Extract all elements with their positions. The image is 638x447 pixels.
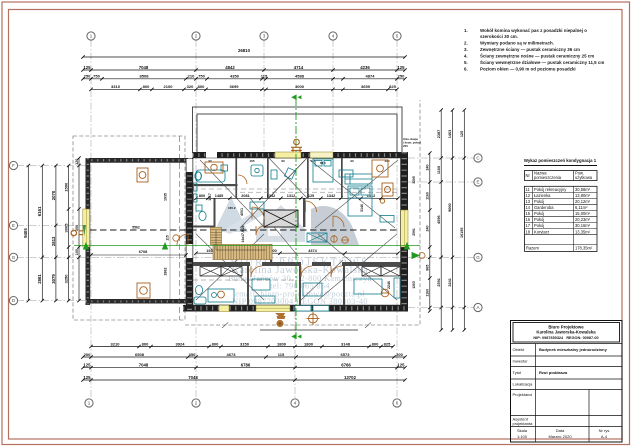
svg-text:100: 100 bbox=[75, 249, 79, 255]
svg-text:3659: 3659 bbox=[361, 84, 371, 89]
svg-text:115: 115 bbox=[278, 352, 285, 357]
svg-text:1342: 1342 bbox=[327, 194, 335, 198]
svg-text:18: 18 bbox=[526, 229, 531, 234]
svg-text:30,58m²: 30,58m² bbox=[575, 187, 591, 192]
svg-text:800: 800 bbox=[212, 341, 219, 346]
svg-text:17: 17 bbox=[526, 223, 531, 228]
svg-text:F: F bbox=[12, 163, 15, 168]
svg-text:Łazienka: Łazienka bbox=[534, 193, 551, 198]
svg-text:800: 800 bbox=[199, 194, 205, 198]
svg-text:165.2: 165.2 bbox=[228, 206, 236, 210]
svg-text:Pokój: Pokój bbox=[534, 223, 544, 228]
svg-text:1342: 1342 bbox=[267, 194, 275, 198]
svg-text:125: 125 bbox=[83, 375, 91, 380]
svg-text:4374: 4374 bbox=[308, 249, 317, 253]
svg-text:6786: 6786 bbox=[241, 362, 251, 367]
svg-text:1203: 1203 bbox=[412, 281, 416, 289]
svg-text:5.: 5. bbox=[464, 60, 468, 65]
svg-text:125: 125 bbox=[397, 65, 405, 70]
svg-text:Zewnętrzne ściany — pustak cer: Zewnętrzne ściany — pustak ceramiczny 36… bbox=[480, 47, 580, 52]
svg-text:90: 90 bbox=[350, 159, 354, 163]
svg-text:16: 16 bbox=[526, 217, 531, 222]
svg-text:4714: 4714 bbox=[294, 65, 304, 70]
svg-text:Poziom okien — 0,90 m od pozio: Poziom okien — 0,90 m od poziomu posadzk… bbox=[480, 67, 576, 72]
svg-text:14: 14 bbox=[526, 205, 531, 210]
svg-text:13,35m²: 13,35m² bbox=[575, 229, 591, 234]
svg-text:750: 750 bbox=[198, 74, 205, 79]
svg-text:125: 125 bbox=[397, 362, 405, 367]
svg-text:4673: 4673 bbox=[227, 352, 237, 357]
svg-text:Lokalizacja: Lokalizacja bbox=[513, 382, 534, 387]
svg-text:800: 800 bbox=[198, 84, 205, 89]
svg-text:1485: 1485 bbox=[215, 194, 223, 198]
svg-text:3699: 3699 bbox=[230, 84, 240, 89]
svg-text:szerokości 30 cm.: szerokości 30 cm. bbox=[480, 34, 518, 39]
svg-text:2100: 2100 bbox=[164, 84, 174, 89]
svg-text:Ściany zewnętrzne nośne — pust: Ściany zewnętrzne nośne — pustak ceramic… bbox=[480, 53, 594, 59]
svg-text:800: 800 bbox=[372, 341, 379, 346]
svg-text:Rzut poddasza: Rzut poddasza bbox=[539, 370, 568, 375]
svg-text:6161: 6161 bbox=[37, 206, 42, 216]
svg-text:7048: 7048 bbox=[139, 65, 149, 70]
svg-text:Marzec 2020: Marzec 2020 bbox=[548, 434, 572, 439]
svg-text:1312: 1312 bbox=[287, 194, 295, 198]
svg-text:Tytuł: Tytuł bbox=[513, 370, 522, 375]
svg-text:4588: 4588 bbox=[295, 74, 305, 79]
svg-text:Obiekt: Obiekt bbox=[513, 347, 525, 352]
svg-text:4001: 4001 bbox=[240, 208, 244, 216]
svg-text:2246: 2246 bbox=[387, 281, 391, 289]
svg-text:projektanta: projektanta bbox=[513, 421, 534, 426]
svg-text:13: 13 bbox=[526, 199, 531, 204]
svg-text:1117: 1117 bbox=[208, 193, 212, 201]
svg-text:4350: 4350 bbox=[230, 74, 240, 79]
svg-text:Razem: Razem bbox=[526, 245, 540, 250]
svg-text:1590: 1590 bbox=[64, 182, 69, 192]
svg-text:Wykaz pomieszczeń kondygnacja: Wykaz pomieszczeń kondygnacja 1 bbox=[524, 158, 597, 163]
svg-text:15: 15 bbox=[526, 211, 531, 216]
svg-text:3005: 3005 bbox=[64, 223, 69, 233]
svg-text:2861: 2861 bbox=[37, 274, 42, 284]
svg-text:pomieszczenia: pomieszczenia bbox=[534, 175, 562, 180]
svg-text:7048: 7048 bbox=[139, 362, 149, 367]
svg-text:Ściany wewnętrzne działowe — p: Ściany wewnętrzne działowe — pustak cera… bbox=[480, 59, 604, 65]
svg-text:Garderoba: Garderoba bbox=[534, 205, 554, 210]
svg-text:115: 115 bbox=[166, 235, 170, 241]
svg-text:20,12m²: 20,12m² bbox=[575, 199, 591, 204]
svg-text:13,80m²: 13,80m² bbox=[575, 193, 591, 198]
svg-text:6573: 6573 bbox=[341, 352, 351, 357]
svg-text:4596: 4596 bbox=[437, 215, 441, 223]
svg-text:1935: 1935 bbox=[164, 193, 168, 201]
svg-text:Wokół komina wykonać pas z pos: Wokół komina wykonać pas z posadzki niep… bbox=[480, 28, 587, 33]
svg-text:A-4: A-4 bbox=[601, 434, 608, 439]
svg-text:240: 240 bbox=[425, 165, 429, 171]
svg-text:6.: 6. bbox=[464, 67, 468, 72]
svg-text:115: 115 bbox=[261, 74, 268, 79]
svg-text:3148: 3148 bbox=[341, 341, 351, 346]
svg-text:1463: 1463 bbox=[448, 130, 452, 138]
svg-text:3310: 3310 bbox=[111, 84, 121, 89]
svg-text:300: 300 bbox=[75, 225, 79, 231]
svg-text:G: G bbox=[476, 255, 480, 260]
svg-text:6766: 6766 bbox=[341, 362, 351, 367]
svg-text:Skala: Skala bbox=[517, 428, 528, 433]
svg-text:2862: 2862 bbox=[164, 268, 168, 276]
svg-text:3150: 3150 bbox=[240, 341, 250, 346]
svg-text:2081: 2081 bbox=[241, 194, 249, 198]
svg-text:4874: 4874 bbox=[366, 74, 376, 79]
svg-text:E: E bbox=[476, 180, 479, 185]
svg-text:800: 800 bbox=[143, 84, 150, 89]
svg-text:Pokój: Pokój bbox=[534, 211, 544, 216]
svg-text:865: 865 bbox=[425, 265, 429, 271]
svg-text:1160: 1160 bbox=[437, 166, 441, 174]
svg-text:6508: 6508 bbox=[135, 352, 145, 357]
svg-text:1800: 1800 bbox=[304, 341, 314, 346]
svg-text:3250: 3250 bbox=[64, 274, 69, 284]
svg-text:13702: 13702 bbox=[344, 375, 357, 380]
svg-text:14x17,5/28: 14x17,5/28 bbox=[241, 225, 245, 242]
svg-text:16195: 16195 bbox=[460, 227, 464, 238]
svg-text:250: 250 bbox=[84, 74, 91, 79]
svg-text:3241: 3241 bbox=[448, 278, 452, 286]
svg-text:320: 320 bbox=[187, 84, 194, 89]
svg-text:7048: 7048 bbox=[188, 375, 198, 380]
svg-text:5562: 5562 bbox=[132, 225, 140, 229]
svg-text:3.: 3. bbox=[464, 47, 468, 52]
svg-text:Budynek mieszkalny jednorodzin: Budynek mieszkalny jednorodzinny bbox=[539, 347, 608, 352]
svg-text:125: 125 bbox=[460, 131, 464, 137]
svg-text:1.: 1. bbox=[464, 28, 468, 33]
svg-text:210: 210 bbox=[188, 74, 195, 79]
svg-text:2591: 2591 bbox=[412, 228, 416, 236]
svg-text:Nr rys: Nr rys bbox=[599, 428, 610, 433]
svg-text:178,35m²: 178,35m² bbox=[575, 245, 593, 250]
svg-text:750: 750 bbox=[93, 74, 100, 79]
svg-text:Karolina Jaworska-Kowalska: Karolina Jaworska-Kowalska bbox=[536, 330, 596, 335]
svg-text:1160: 1160 bbox=[425, 192, 429, 200]
svg-text:3079: 3079 bbox=[51, 274, 56, 284]
svg-text:200: 200 bbox=[84, 352, 91, 357]
svg-text:9000: 9000 bbox=[448, 203, 452, 211]
svg-text:26810: 26810 bbox=[238, 48, 251, 53]
svg-text:15,00m²: 15,00m² bbox=[575, 211, 591, 216]
svg-text:NIP: 0987650324 REGON: 00987: NIP: 0987650324 REGON: 00987-00 bbox=[533, 336, 598, 340]
svg-text:Data: Data bbox=[556, 428, 565, 433]
svg-text:4.: 4. bbox=[464, 54, 468, 59]
svg-text:1800: 1800 bbox=[277, 341, 287, 346]
svg-text:G: G bbox=[12, 255, 16, 260]
svg-text:Projektanci: Projektanci bbox=[513, 392, 533, 397]
svg-text:Pokój rekreacyjny: Pokój rekreacyjny bbox=[534, 187, 567, 192]
svg-text:20,23m²: 20,23m² bbox=[575, 217, 591, 222]
svg-text:30,16m²: 30,16m² bbox=[575, 223, 591, 228]
svg-text:1160: 1160 bbox=[425, 289, 429, 297]
svg-text:825: 825 bbox=[384, 341, 391, 346]
svg-text:12: 12 bbox=[526, 193, 531, 198]
svg-text:2387: 2387 bbox=[437, 130, 441, 138]
svg-text:250: 250 bbox=[403, 144, 408, 148]
svg-text:11: 11 bbox=[526, 187, 531, 192]
svg-text:120: 120 bbox=[75, 159, 79, 165]
svg-text:użytkowa: użytkowa bbox=[575, 175, 593, 180]
svg-text:Pokój: Pokój bbox=[534, 217, 544, 222]
svg-text:3205: 3205 bbox=[412, 176, 416, 184]
svg-text:1:100: 1:100 bbox=[517, 434, 528, 439]
svg-text:3924: 3924 bbox=[176, 341, 186, 346]
svg-text:165: 165 bbox=[249, 159, 254, 163]
svg-text:250: 250 bbox=[398, 74, 405, 79]
svg-text:Wymiary podano są w milimetrac: Wymiary podano są w milimetrach. bbox=[480, 41, 554, 46]
svg-text:3210: 3210 bbox=[111, 341, 121, 346]
svg-text:125: 125 bbox=[308, 194, 314, 198]
svg-text:6,11m²: 6,11m² bbox=[575, 205, 588, 210]
svg-text:2591: 2591 bbox=[437, 278, 441, 286]
svg-text:825: 825 bbox=[389, 84, 396, 89]
svg-text:125: 125 bbox=[83, 65, 91, 70]
svg-text:240: 240 bbox=[425, 226, 429, 232]
svg-text:2.: 2. bbox=[464, 41, 468, 46]
svg-text:8508: 8508 bbox=[140, 74, 150, 79]
svg-text:A: A bbox=[476, 305, 479, 310]
svg-text:Nr: Nr bbox=[526, 173, 531, 178]
svg-text:Inwestor: Inwestor bbox=[513, 359, 529, 364]
svg-text:800: 800 bbox=[142, 341, 149, 346]
svg-text:Pokój: Pokój bbox=[534, 199, 544, 204]
svg-text:2070: 2070 bbox=[51, 190, 56, 200]
svg-text:Korytarz: Korytarz bbox=[534, 229, 549, 234]
svg-text:3146: 3146 bbox=[360, 204, 364, 212]
svg-text:350: 350 bbox=[189, 352, 196, 357]
svg-text:3000: 3000 bbox=[295, 84, 305, 89]
svg-text:E: E bbox=[12, 223, 15, 228]
svg-text:4842: 4842 bbox=[225, 65, 235, 70]
svg-text:4236: 4236 bbox=[360, 65, 370, 70]
svg-text:6708: 6708 bbox=[139, 250, 147, 254]
svg-text:2813: 2813 bbox=[51, 236, 56, 246]
svg-text:84.5: 84.5 bbox=[320, 161, 326, 165]
svg-text:125: 125 bbox=[83, 362, 91, 367]
svg-text:90: 90 bbox=[281, 159, 285, 163]
svg-text:9405: 9405 bbox=[23, 228, 28, 238]
svg-text:200: 200 bbox=[396, 352, 403, 357]
